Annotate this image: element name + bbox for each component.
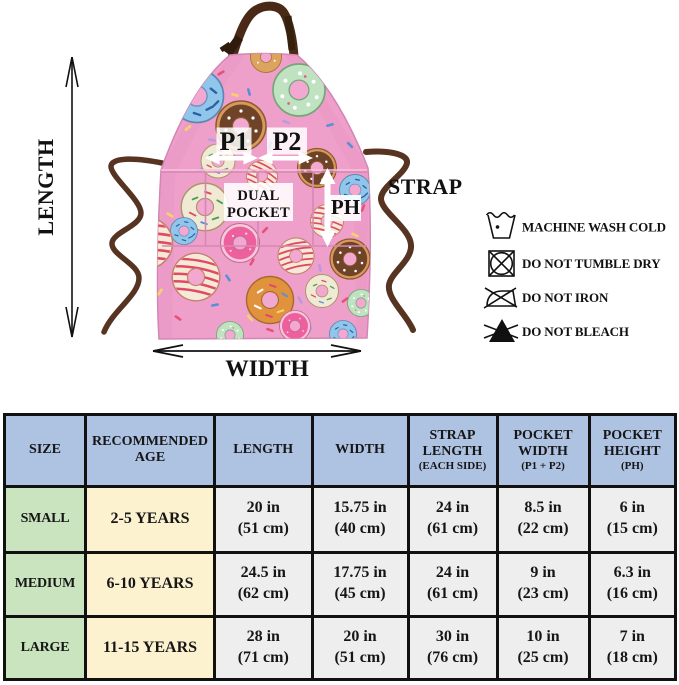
svg-text:P1: P1: [220, 127, 249, 156]
svg-text:DO NOT IRON: DO NOT IRON: [522, 290, 609, 305]
svg-text:PH: PH: [331, 195, 360, 219]
svg-text:WIDTH: WIDTH: [225, 356, 309, 382]
svg-text:STRAP: STRAP: [388, 174, 463, 199]
svg-text:P2: P2: [273, 127, 302, 156]
svg-text:DO NOT BLEACH: DO NOT BLEACH: [522, 324, 629, 339]
svg-text:DO NOT TUMBLE DRY: DO NOT TUMBLE DRY: [522, 256, 661, 271]
svg-text:LENGTH: LENGTH: [33, 138, 58, 235]
svg-text:DUAL: DUAL: [237, 188, 279, 204]
svg-text:MACHINE WASH COLD: MACHINE WASH COLD: [522, 220, 666, 235]
svg-text:POCKET: POCKET: [227, 205, 290, 221]
